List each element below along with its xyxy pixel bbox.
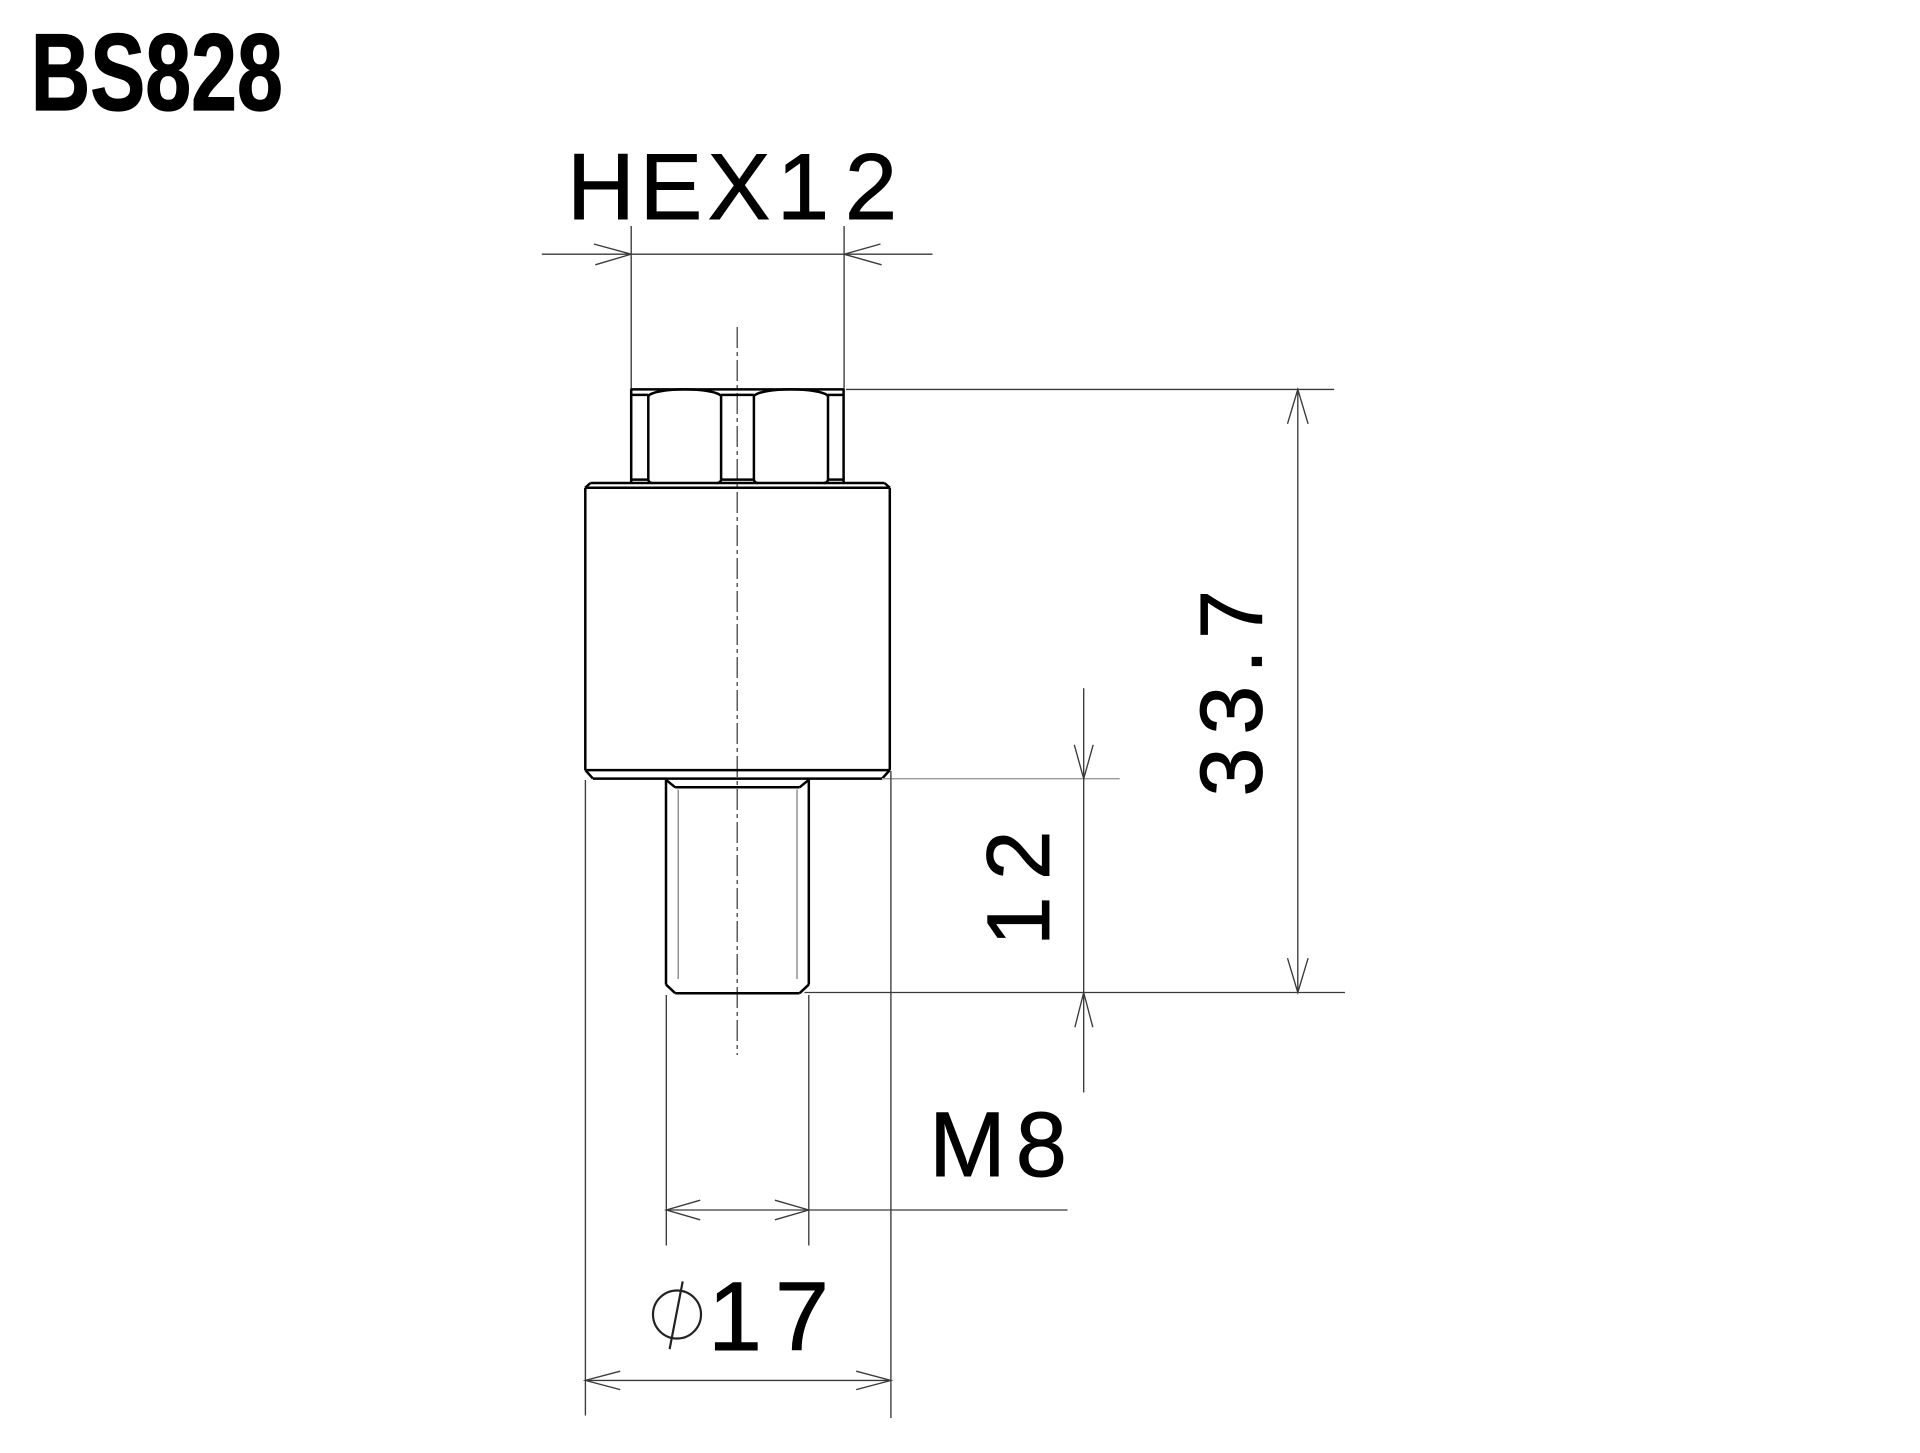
svg-text:.: . <box>1182 649 1281 673</box>
svg-text:8: 8 <box>1016 1094 1067 1196</box>
svg-text:2: 2 <box>845 134 897 239</box>
svg-text:M: M <box>929 1094 1006 1196</box>
svg-text:E: E <box>640 134 703 239</box>
svg-text:2: 2 <box>968 831 1068 881</box>
svg-text:3: 3 <box>1182 686 1281 735</box>
svg-text:7: 7 <box>775 1262 829 1371</box>
svg-text:BS828: BS828 <box>31 10 283 133</box>
svg-text:H: H <box>567 134 635 239</box>
svg-text:X: X <box>708 134 771 239</box>
svg-text:3: 3 <box>1182 748 1281 797</box>
svg-text:1: 1 <box>777 134 829 239</box>
svg-text:1: 1 <box>968 897 1068 947</box>
svg-text:1: 1 <box>708 1262 762 1371</box>
svg-text:7: 7 <box>1182 590 1281 639</box>
